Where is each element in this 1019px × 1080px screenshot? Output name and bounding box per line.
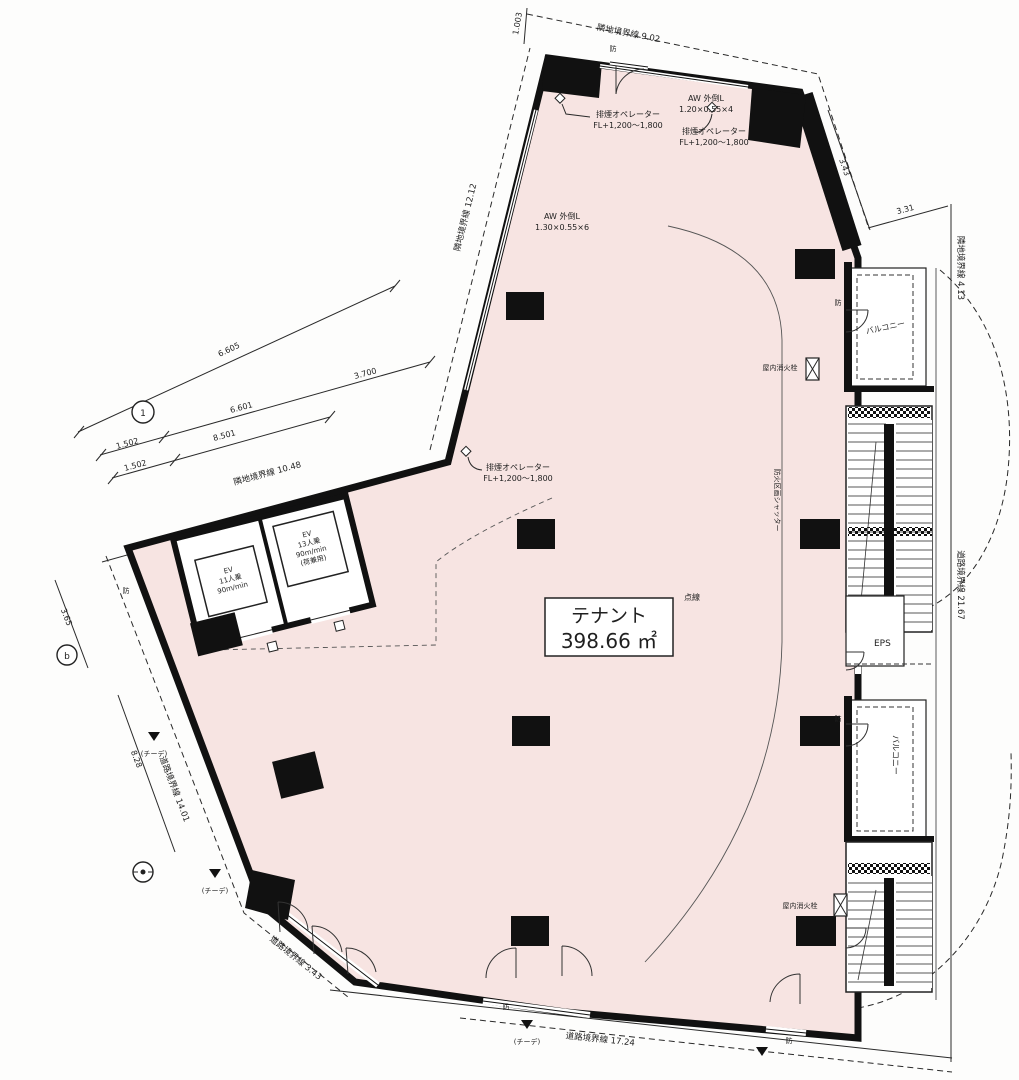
grid-marker-b: b bbox=[57, 645, 77, 665]
eps-room bbox=[846, 596, 904, 666]
hydrant-lower-label: 屋内消火栓 bbox=[783, 901, 818, 910]
tenant-area: 398.66 ㎡ bbox=[561, 629, 657, 653]
fire-hydrant-icon bbox=[806, 358, 819, 380]
partition-line-label: 防火区画シャッター bbox=[773, 469, 782, 532]
aw-window-top-size: 1.20×0.55×4 bbox=[679, 105, 733, 114]
aw-window-top-label: AW 外倒L bbox=[688, 93, 724, 103]
aw-window-mid-size: 1.30×0.55×6 bbox=[535, 223, 589, 232]
smoke-operator-label: 排煙オペレーター bbox=[596, 109, 660, 119]
fire-door-mark: 防 bbox=[786, 1036, 793, 1045]
grid-marker-1: 1 bbox=[132, 401, 154, 423]
smoke-operator-label: 排煙オペレーター bbox=[486, 462, 550, 472]
dim-1502-b: 1.502 bbox=[123, 458, 147, 473]
stair-lower bbox=[846, 842, 932, 992]
smoke-operator-label: 排煙オペレーター bbox=[682, 126, 746, 136]
dim-365: 3.65 bbox=[59, 607, 74, 627]
benchmark-marker bbox=[133, 862, 153, 882]
smoke-operator-height: FL+1,200〜1,800 bbox=[483, 474, 553, 483]
hydrant-upper-label: 屋内消火栓 bbox=[763, 363, 798, 372]
grid-marker-b-label: b bbox=[64, 652, 70, 662]
level-arrow-label: (チーデ) bbox=[514, 1037, 541, 1046]
fire-door-mark: 防 bbox=[610, 44, 617, 53]
right-service-zone bbox=[844, 262, 936, 1000]
smoke-operator-height: FL+1,200〜1,800 bbox=[593, 121, 663, 130]
level-arrow bbox=[148, 732, 160, 741]
level-arrow-label: (チーデ) bbox=[141, 749, 168, 758]
level-arrow bbox=[209, 869, 221, 878]
dim-3700: 3.700 bbox=[353, 366, 377, 381]
eps-label: EPS bbox=[874, 639, 891, 649]
level-arrow bbox=[756, 1047, 768, 1056]
level-arrow-label: (チーデ) bbox=[202, 886, 229, 895]
smoke-operator-height: FL+1,200〜1,800 bbox=[679, 138, 749, 147]
boundary-upper-left-label: 隣地境界線 12.12 bbox=[452, 182, 479, 252]
boundary-right-label: 道路境界線 21.67 bbox=[955, 550, 966, 620]
dim-1502-a: 1.502 bbox=[115, 436, 139, 451]
balcony-lower bbox=[850, 700, 926, 838]
tenant-name: テナント bbox=[571, 605, 647, 627]
dim-6605: 6.605 bbox=[217, 341, 242, 359]
aw-window-mid-label: AW 外倒L bbox=[544, 211, 580, 221]
fire-hydrant-icon bbox=[834, 894, 847, 916]
fire-door-mark: 防 bbox=[835, 298, 842, 307]
tenant-note: 点線 bbox=[684, 592, 700, 602]
floor-plan-svg: EV 11人乗 90m/min EV 13人乗 90m/min (荷兼用) bbox=[0, 0, 1019, 1080]
dim-331: 3.31 bbox=[896, 203, 916, 216]
dim-343: 3.43 bbox=[837, 157, 851, 177]
fire-door-mark: 防 bbox=[123, 586, 130, 595]
fire-door-mark: 防 bbox=[835, 714, 842, 723]
floor-plan-sheet: EV 11人乗 90m/min EV 13人乗 90m/min (荷兼用) bbox=[0, 0, 1019, 1080]
boundary-top-label: 隣地境界線 9.02 bbox=[596, 22, 661, 45]
grid-marker-1-label: 1 bbox=[140, 409, 146, 419]
boundary-top-right-label: 隣地境界線 4.13 bbox=[955, 236, 966, 300]
dim-1003: 1.003 bbox=[511, 12, 524, 36]
boundary-left-label: 隣地境界線 10.48 bbox=[232, 459, 302, 488]
dim-8501: 8.501 bbox=[212, 428, 236, 443]
fire-door-mark: 防 bbox=[503, 1002, 510, 1011]
balcony-lower-label: バルコニー bbox=[891, 735, 900, 775]
